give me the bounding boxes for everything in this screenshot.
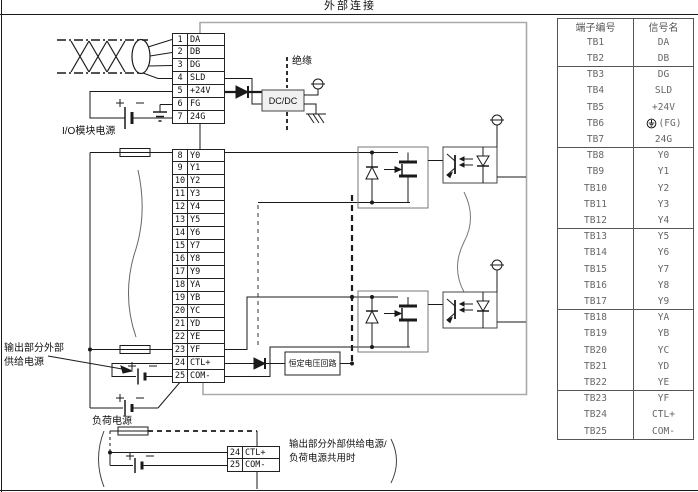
terminal-row: 16Y8 xyxy=(172,253,225,266)
table-cell-terminal: TB1 xyxy=(558,34,634,50)
table-row: TB6(FG) xyxy=(557,115,694,132)
terminal-label: Y3 xyxy=(188,189,200,199)
terminal-number: 22 xyxy=(173,331,188,343)
signal-name: YD xyxy=(658,361,669,372)
table-cell-signal: Y3 xyxy=(634,196,693,212)
terminal-row: 724G xyxy=(172,111,225,124)
table-cell-signal: +24V xyxy=(634,99,693,115)
terminal-number: 8 xyxy=(173,150,188,161)
terminal-row: 24CTL+ xyxy=(227,446,280,459)
terminal-number: 18 xyxy=(173,279,188,291)
terminal-number: 3 xyxy=(173,59,188,71)
table-cell-signal: Y4 xyxy=(634,212,693,228)
table-cell-signal: Y9 xyxy=(634,293,693,309)
manual-page: 外部连接 绝缘 I/O模块电源 DC/DC 恒定电压回路 输出部分外部 供给电源… xyxy=(0,0,698,492)
protective-earth-icon xyxy=(646,118,657,129)
table-row: TB14Y6 xyxy=(557,245,694,262)
table-cell-signal: COM- xyxy=(634,423,693,439)
terminal-label: Y8 xyxy=(188,254,200,264)
isolation-label: 绝缘 xyxy=(292,56,312,68)
table-cell-terminal: TB17 xyxy=(558,293,634,309)
terminal-row: 20YC xyxy=(172,305,225,318)
table-row: TB15Y7 xyxy=(557,261,694,278)
table-cell-terminal: TB22 xyxy=(558,374,634,390)
table-cell-terminal: TB7 xyxy=(558,131,634,147)
table-cell-terminal: TB5 xyxy=(558,99,634,115)
terminal-label: COM- xyxy=(243,460,265,470)
terminal-number: 5 xyxy=(173,85,188,97)
terminal-row: 22YE xyxy=(172,331,225,344)
table-cell-signal: Y7 xyxy=(634,261,693,277)
signal-name: YE xyxy=(658,377,669,388)
terminal-number: 9 xyxy=(173,162,188,174)
terminal-label: Y7 xyxy=(188,241,200,251)
terminal-row: 5+24V xyxy=(172,85,225,98)
signal-name: Y9 xyxy=(658,296,669,307)
terminal-number: 16 xyxy=(173,253,188,265)
terminal-number: 19 xyxy=(173,292,188,304)
table-cell-terminal: TB3 xyxy=(558,67,634,83)
signal-name: YC xyxy=(658,345,669,356)
table-cell-terminal: TB12 xyxy=(558,212,634,228)
terminal-label: YB xyxy=(188,293,200,303)
terminal-row: 1DA xyxy=(172,33,225,46)
terminal-label: Y4 xyxy=(188,202,200,212)
table-cell-terminal: TB19 xyxy=(558,326,634,342)
terminal-number: 12 xyxy=(173,201,188,213)
terminal-number: 4 xyxy=(173,72,188,84)
terminal-number: 25 xyxy=(228,459,243,471)
table-row: TB1DA xyxy=(557,34,694,51)
terminal-label: Y1 xyxy=(188,163,200,173)
table-cell-terminal: TB10 xyxy=(558,180,634,196)
terminal-label: YF xyxy=(188,345,200,355)
terminal-label: DG xyxy=(188,60,200,70)
table-cell-terminal: TB20 xyxy=(558,342,634,358)
terminal-row: 6FG xyxy=(172,98,225,111)
terminal-row: 21YD xyxy=(172,318,225,331)
shared-note-line1: 输出部分外部供给电源/ xyxy=(289,439,387,450)
terminal-number: 25 xyxy=(173,370,188,382)
table-cell-signal: YB xyxy=(634,326,693,342)
terminal-label: CTL+ xyxy=(243,448,265,458)
terminal-number: 1 xyxy=(173,34,188,45)
terminal-row: 23YF xyxy=(172,344,225,357)
terminal-row: 19YB xyxy=(172,292,225,305)
page-title: 外部连接 xyxy=(300,0,400,13)
table-cell-terminal: TB25 xyxy=(558,423,634,439)
terminal-number: 14 xyxy=(173,227,188,239)
table-cell-signal: YC xyxy=(634,342,693,358)
table-cell-terminal: TB24 xyxy=(558,407,634,423)
terminal-number: 6 xyxy=(173,98,188,110)
table-cell-signal: (FG) xyxy=(634,115,693,131)
terminal-number: 10 xyxy=(173,175,188,187)
signal-name: Y8 xyxy=(658,280,669,291)
terminal-row: 15Y7 xyxy=(172,240,225,253)
table-cell-terminal: TB2 xyxy=(558,50,634,66)
terminal-number: 20 xyxy=(173,305,188,317)
terminal-number: 24 xyxy=(173,357,188,369)
column-header-terminal: 端子编号 xyxy=(558,19,634,34)
terminal-row: 12Y4 xyxy=(172,201,225,214)
terminal-row: 13Y5 xyxy=(172,214,225,227)
table-row: TB11Y3 xyxy=(557,196,694,213)
terminal-label: Y9 xyxy=(188,267,200,277)
table-cell-signal: CTL+ xyxy=(634,407,693,423)
table-row: TB16Y8 xyxy=(557,277,694,294)
table-row: TB21YD xyxy=(557,358,694,375)
terminal-row: 25COM- xyxy=(172,370,225,383)
terminal-label: Y5 xyxy=(188,215,200,225)
terminal-number: 21 xyxy=(173,318,188,330)
table-cell-signal: Y2 xyxy=(634,180,693,196)
terminal-label: Y2 xyxy=(188,176,200,186)
signal-name: COM- xyxy=(652,426,675,437)
signal-name: CTL+ xyxy=(652,409,675,420)
table-row: TB24CTL+ xyxy=(557,407,694,424)
io-power-label: I/O模块电源 xyxy=(62,126,115,138)
terminal-label: CTL+ xyxy=(188,358,210,368)
table-cell-terminal: TB13 xyxy=(558,229,634,245)
table-header-row: 端子编号信号名 xyxy=(557,18,694,35)
signal-name: SLD xyxy=(655,85,672,96)
terminal-label: YC xyxy=(188,306,200,316)
signal-name: DB xyxy=(658,53,669,64)
terminal-number: 15 xyxy=(173,240,188,252)
table-row: TB4SLD xyxy=(557,83,694,100)
table-cell-signal: Y0 xyxy=(634,148,693,164)
table-cell-signal: DG xyxy=(634,67,693,83)
signal-name: DA xyxy=(658,37,669,48)
terminal-number: 17 xyxy=(173,266,188,278)
table-row: TB5+24V xyxy=(557,99,694,116)
table-row: TB22YE xyxy=(557,374,694,391)
signal-name: Y3 xyxy=(658,199,669,210)
constant-voltage-circuit-label: 恒定电压回路 xyxy=(285,352,340,375)
table-cell-terminal: TB6 xyxy=(558,115,634,131)
table-cell-signal: Y8 xyxy=(634,277,693,293)
terminal-number: 7 xyxy=(173,111,188,123)
table-row: TB10Y2 xyxy=(557,180,694,197)
table-cell-terminal: TB9 xyxy=(558,164,634,180)
terminal-number: 23 xyxy=(173,344,188,356)
signal-name: (FG) xyxy=(659,118,682,129)
table-cell-signal: YF xyxy=(634,391,693,407)
table-row: TB19YB xyxy=(557,326,694,343)
terminal-row: 3DG xyxy=(172,59,225,72)
terminal-row: 24CTL+ xyxy=(172,357,225,370)
table-row: TB13Y5 xyxy=(557,229,694,246)
signal-name: YF xyxy=(658,393,669,404)
table-cell-signal: 24G xyxy=(634,131,693,147)
load-power-label: 负荷电源 xyxy=(92,416,132,428)
signal-name: Y4 xyxy=(658,215,669,226)
table-cell-signal: Y6 xyxy=(634,245,693,261)
terminal-label: FG xyxy=(188,99,200,109)
terminal-row: 18YA xyxy=(172,279,225,292)
table-row: TB23YF xyxy=(557,391,694,408)
signal-name: Y7 xyxy=(658,264,669,275)
terminal-label: YA xyxy=(188,280,200,290)
signal-name: Y6 xyxy=(658,247,669,258)
terminal-label: YD xyxy=(188,319,200,329)
signal-name: YB xyxy=(658,328,669,339)
table-row: TB12Y4 xyxy=(557,212,694,229)
terminal-row: 8Y0 xyxy=(172,149,225,162)
terminal-number: 24 xyxy=(228,447,243,458)
table-row: TB724G xyxy=(557,131,694,148)
terminal-row: 25COM- xyxy=(227,459,280,472)
table-cell-signal: DA xyxy=(634,34,693,50)
terminal-number: 11 xyxy=(173,188,188,200)
signal-name: Y5 xyxy=(658,231,669,242)
terminal-label: SLD xyxy=(188,73,205,83)
table-cell-terminal: TB8 xyxy=(558,148,634,164)
table-row: TB2DB xyxy=(557,50,694,67)
table-cell-terminal: TB21 xyxy=(558,358,634,374)
signal-name: YA xyxy=(658,312,669,323)
terminal-label: DA xyxy=(188,35,200,45)
table-cell-terminal: TB18 xyxy=(558,310,634,326)
table-cell-terminal: TB16 xyxy=(558,277,634,293)
terminal-label: +24V xyxy=(188,86,210,96)
table-cell-signal: DB xyxy=(634,50,693,66)
signal-name: Y0 xyxy=(658,150,669,161)
terminal-number: 2 xyxy=(173,46,188,58)
terminal-label: COM- xyxy=(188,371,210,381)
table-row: TB18YA xyxy=(557,310,694,327)
terminal-row: 11Y3 xyxy=(172,188,225,201)
table-cell-terminal: TB11 xyxy=(558,196,634,212)
terminal-row: 17Y9 xyxy=(172,266,225,279)
terminal-number: 13 xyxy=(173,214,188,226)
terminal-row: 4SLD xyxy=(172,72,225,85)
table-cell-signal: YD xyxy=(634,358,693,374)
table-cell-signal: SLD xyxy=(634,83,693,99)
signal-name: +24V xyxy=(652,102,675,113)
terminal-label: Y6 xyxy=(188,228,200,238)
terminal-row: 10Y2 xyxy=(172,175,225,188)
terminal-label: Y0 xyxy=(188,151,200,161)
column-header-signal: 信号名 xyxy=(634,19,693,34)
signal-name: 24G xyxy=(655,134,672,145)
ext-supply-label-line1: 输出部分外部 xyxy=(4,343,64,355)
signal-name: Y1 xyxy=(658,166,669,177)
table-row: TB9Y1 xyxy=(557,164,694,181)
table-cell-signal: YA xyxy=(634,310,693,326)
signal-name: DG xyxy=(658,69,669,80)
table-cell-signal: YE xyxy=(634,374,693,390)
table-row: TB3DG xyxy=(557,67,694,84)
terminal-label: 24G xyxy=(188,112,205,122)
terminal-row: 2DB xyxy=(172,46,225,59)
ext-supply-label-line2: 供给电源 xyxy=(4,357,44,369)
terminal-row: 14Y6 xyxy=(172,227,225,240)
table-row: TB25COM- xyxy=(557,423,694,440)
table-cell-signal: Y5 xyxy=(634,229,693,245)
shared-note-line2: 负荷电源共用时 xyxy=(289,453,356,464)
table-cell-terminal: TB23 xyxy=(558,391,634,407)
dcdc-converter-label: DC/DC xyxy=(262,90,304,111)
terminal-label: DB xyxy=(188,47,200,57)
table-row: TB17Y9 xyxy=(557,293,694,310)
table-row: TB8Y0 xyxy=(557,148,694,165)
terminal-label: YE xyxy=(188,332,200,342)
table-cell-signal: Y1 xyxy=(634,164,693,180)
table-cell-terminal: TB14 xyxy=(558,245,634,261)
terminal-row: 9Y1 xyxy=(172,162,225,175)
signal-name: Y2 xyxy=(658,183,669,194)
table-row: TB20YC xyxy=(557,342,694,359)
table-cell-terminal: TB15 xyxy=(558,261,634,277)
table-cell-terminal: TB4 xyxy=(558,83,634,99)
